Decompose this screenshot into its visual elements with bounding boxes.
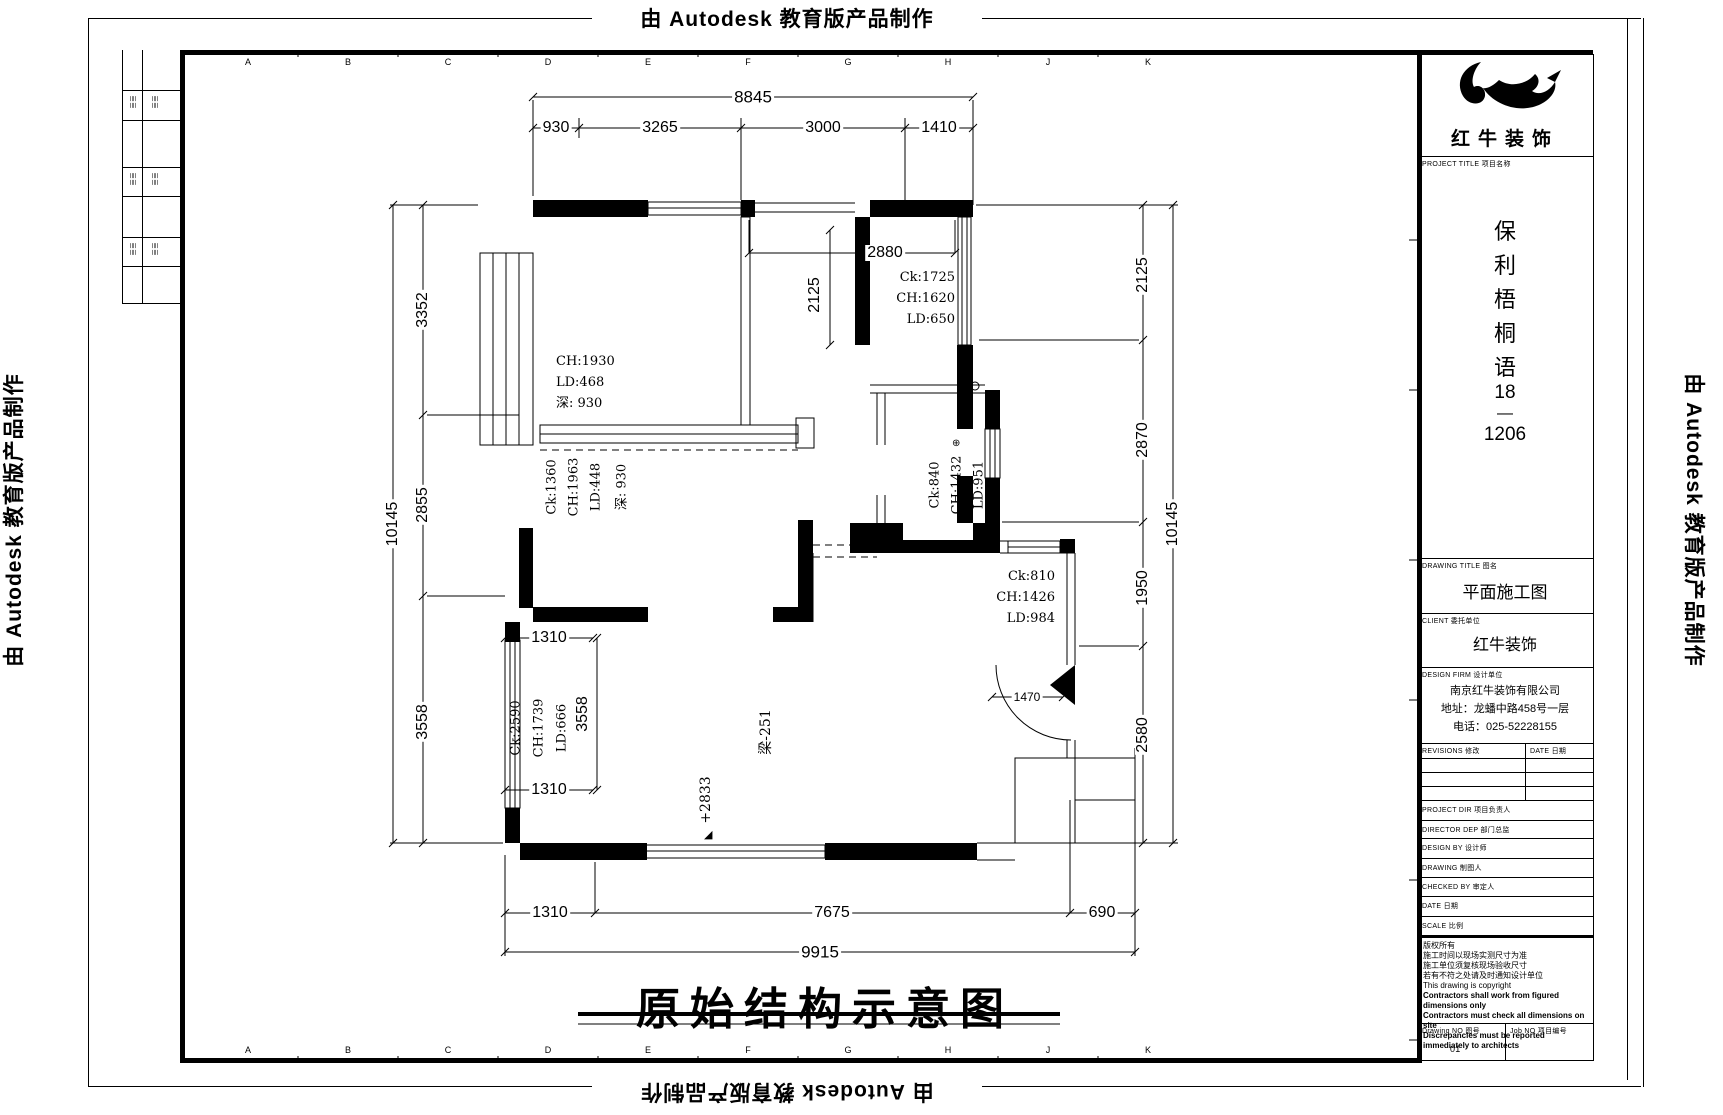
level-label: +2833 [699,774,713,825]
grid-letter-top: C [445,57,452,67]
dim-top-seg: 930 [541,120,572,136]
legend-cell-mark: ≣≣ [151,172,159,185]
titleblock-divider [1417,558,1593,559]
fixture-circle-plus-icon: ⊕ [952,438,960,449]
client-value: 红牛装饰 [1417,631,1593,655]
grid-letter-bottom: E [645,1045,651,1055]
design-firm-name: 南京红牛装饰有限公司 [1417,682,1593,698]
dim-top-seg: 3000 [803,120,843,136]
grid-letter-top: J [1046,57,1051,67]
project-name-char: 利 [1465,248,1545,280]
staff-row-label: PROJECT DIR 项目负责人 [1422,805,1511,815]
dim-inner-2125: 2125 [807,275,823,315]
titleblock-divider [1417,858,1593,859]
titleblock-divider [1417,1023,1593,1024]
dim-bottom-seg: 1310 [530,905,570,921]
room-label-shaft: Ck:1725 CH:1620 LD:650 [860,268,955,330]
room-label-left-rotated: CH:1739 [532,699,547,758]
beam-label: 梁-251 [759,707,773,756]
project-name-char: 语 [1465,350,1545,382]
titleblock-divider [1417,613,1593,614]
room-label-bedroom2-rotated: CH:1963 [567,458,582,517]
titleblock-divider [1417,820,1593,821]
dim-left-seg: 2855 [415,485,431,525]
revisions-empty-row[interactable] [1417,786,1593,787]
design-firm-address: 地址：龙蟠中路458号一层 [1417,700,1593,716]
dim-bottom-overall: 9915 [799,944,841,961]
legend-cell-mark: ≣≣ [151,242,159,255]
dim-bottom-seg: 690 [1087,905,1118,921]
autodesk-watermark-bottom: 由 Autodesk 教育版产品制作 [592,1078,982,1108]
room-label-bedroom2-rotated: LD:448 [589,463,604,511]
drawing-no-label: Drawing NO 图号 [1422,1026,1480,1036]
brand-name: 红牛装饰 [1417,124,1593,151]
drawing-sheet-title: 原始结构示意图 [636,973,1014,1037]
grid-letter-bottom: K [1145,1045,1151,1055]
autodesk-watermark-right: 由 Autodesk 教育版产品制作 [1680,345,1710,695]
dim-left-overall: 10145 [385,500,401,549]
dim-right-overall: 10145 [1165,500,1181,549]
room-label-left-rotated: Ck:2590 [509,700,524,755]
job-no-label: Job NO 项目编号 [1510,1026,1567,1036]
grid-letter-bottom: A [245,1045,251,1055]
dim-bottom-seg: 7675 [812,905,852,921]
titleblock-divider [1417,838,1593,839]
dim-left-seg: 3558 [415,702,431,742]
staff-row-label: CHECKED BY 审定人 [1422,882,1495,892]
room-label-bath-rotated: LD:951 [972,461,987,509]
drawing-no-value: 01 [1450,1044,1461,1054]
grid-letter-top: K [1145,57,1151,67]
titleblock-divider [1417,896,1593,897]
grid-letter-bottom: F [745,1045,751,1055]
revisions-empty-row[interactable] [1417,758,1593,759]
room-label-entry: Ck:810 CH:1426 LD:984 [960,567,1055,629]
brand-logo-bull-icon [1443,58,1567,120]
grid-letter-bottom: C [445,1045,452,1055]
titleblock-divider [1417,800,1593,801]
grid-letter-bottom: G [844,1045,851,1055]
date-column-label: DATE 日期 [1530,746,1566,756]
titleblock-divider [1417,877,1593,878]
project-title-label: PROJECT TITLE 项目名称 [1422,159,1511,169]
room-label-left-rotated: LD:666 [555,704,570,752]
drawing-title-label: DRAWING TITLE 图名 [1422,561,1497,571]
grid-letter-top: B [345,57,351,67]
grid-letter-top: H [945,57,952,67]
grid-letter-top: A [245,57,251,67]
staff-row-label: DIRECTOR DEP 部门总监 [1422,825,1510,835]
room-label-bath-rotated: CH:1432 [950,456,965,515]
dimension-lines [298,50,1417,1063]
drawing-title-value: 平面施工图 [1417,578,1593,603]
dim-top-seg: 1410 [919,120,959,136]
legend-cell-mark: ≣≣ [151,95,159,108]
titleblock-divider [1417,916,1593,917]
grid-letter-top: F [745,57,751,67]
grid-letter-bottom: H [945,1045,952,1055]
staff-row-label: DRAWING 制图人 [1422,863,1482,873]
project-name-char: — [1465,405,1545,423]
dim-left-3558-inner: 3558 [575,694,591,734]
staff-row-label: SCALE 比例 [1422,921,1463,931]
level-marker-triangle: ◢ [704,828,712,841]
staff-row-label: DESIGN BY 设计师 [1422,843,1487,853]
project-name-char: 梧 [1465,282,1545,314]
legend-cell-mark: ≣≣ [129,95,137,108]
titleblock-divider [1417,743,1593,744]
room-label-bedroom: CH:1930 LD:468 深: 930 [556,352,615,414]
project-name-char: 1206 [1465,424,1545,446]
grid-letter-bottom: B [345,1045,351,1055]
revisions-empty-row[interactable] [1417,772,1593,773]
dim-left-1310-bottom: 1310 [529,782,569,798]
dim-left-1310-top: 1310 [529,630,569,646]
dim-right-seg: 2870 [1135,420,1151,460]
cad-sheet: { "page": { "autodesk_note": "由 Autodesk… [0,0,1723,1115]
grid-letter-bottom: J [1046,1045,1051,1055]
legend-cell-mark: ≣≣ [129,172,137,185]
project-name-char: 保 [1465,214,1545,246]
grid-letter-top: G [844,57,851,67]
client-label: CLIENT 委托单位 [1422,616,1480,626]
legend-cell-mark: ≣≣ [129,242,137,255]
walls [505,200,1075,860]
dim-top-overall: 8845 [732,89,774,106]
dim-left-seg: 3352 [415,290,431,330]
revisions-label: REVISIONS 修改 [1422,746,1480,756]
grid-letter-top: D [545,57,552,67]
project-name-char: 18 [1465,382,1545,404]
design-firm-label: DESIGN FIRM 设计单位 [1422,670,1503,680]
dim-right-seg: 2125 [1135,255,1151,295]
titleblock-divider [1417,156,1593,157]
dim-right-seg: 2580 [1135,715,1151,755]
autodesk-watermark-left: 由 Autodesk 教育版产品制作 [0,345,28,695]
dim-inner-2880: 2880 [865,245,905,261]
room-label-bedroom2-rotated: Ck:1360 [545,459,560,514]
design-firm-phone: 电话：025-52228155 [1417,718,1593,734]
dim-inner-1470: 1470 [1012,691,1043,703]
staff-row-label: DATE 日期 [1422,901,1458,911]
grid-letter-bottom: D [545,1045,552,1055]
room-label-bath-rotated: Ck:840 [928,461,943,508]
dim-top-seg: 3265 [640,120,680,136]
grid-letter-top: E [645,57,651,67]
autodesk-watermark-top: 由 Autodesk 教育版产品制作 [592,3,982,33]
titleblock-divider [1417,667,1593,668]
room-label-bedroom2-rotated: 深: 930 [611,464,630,510]
project-name-char: 桐 [1465,316,1545,348]
dim-right-seg: 1950 [1135,568,1151,608]
